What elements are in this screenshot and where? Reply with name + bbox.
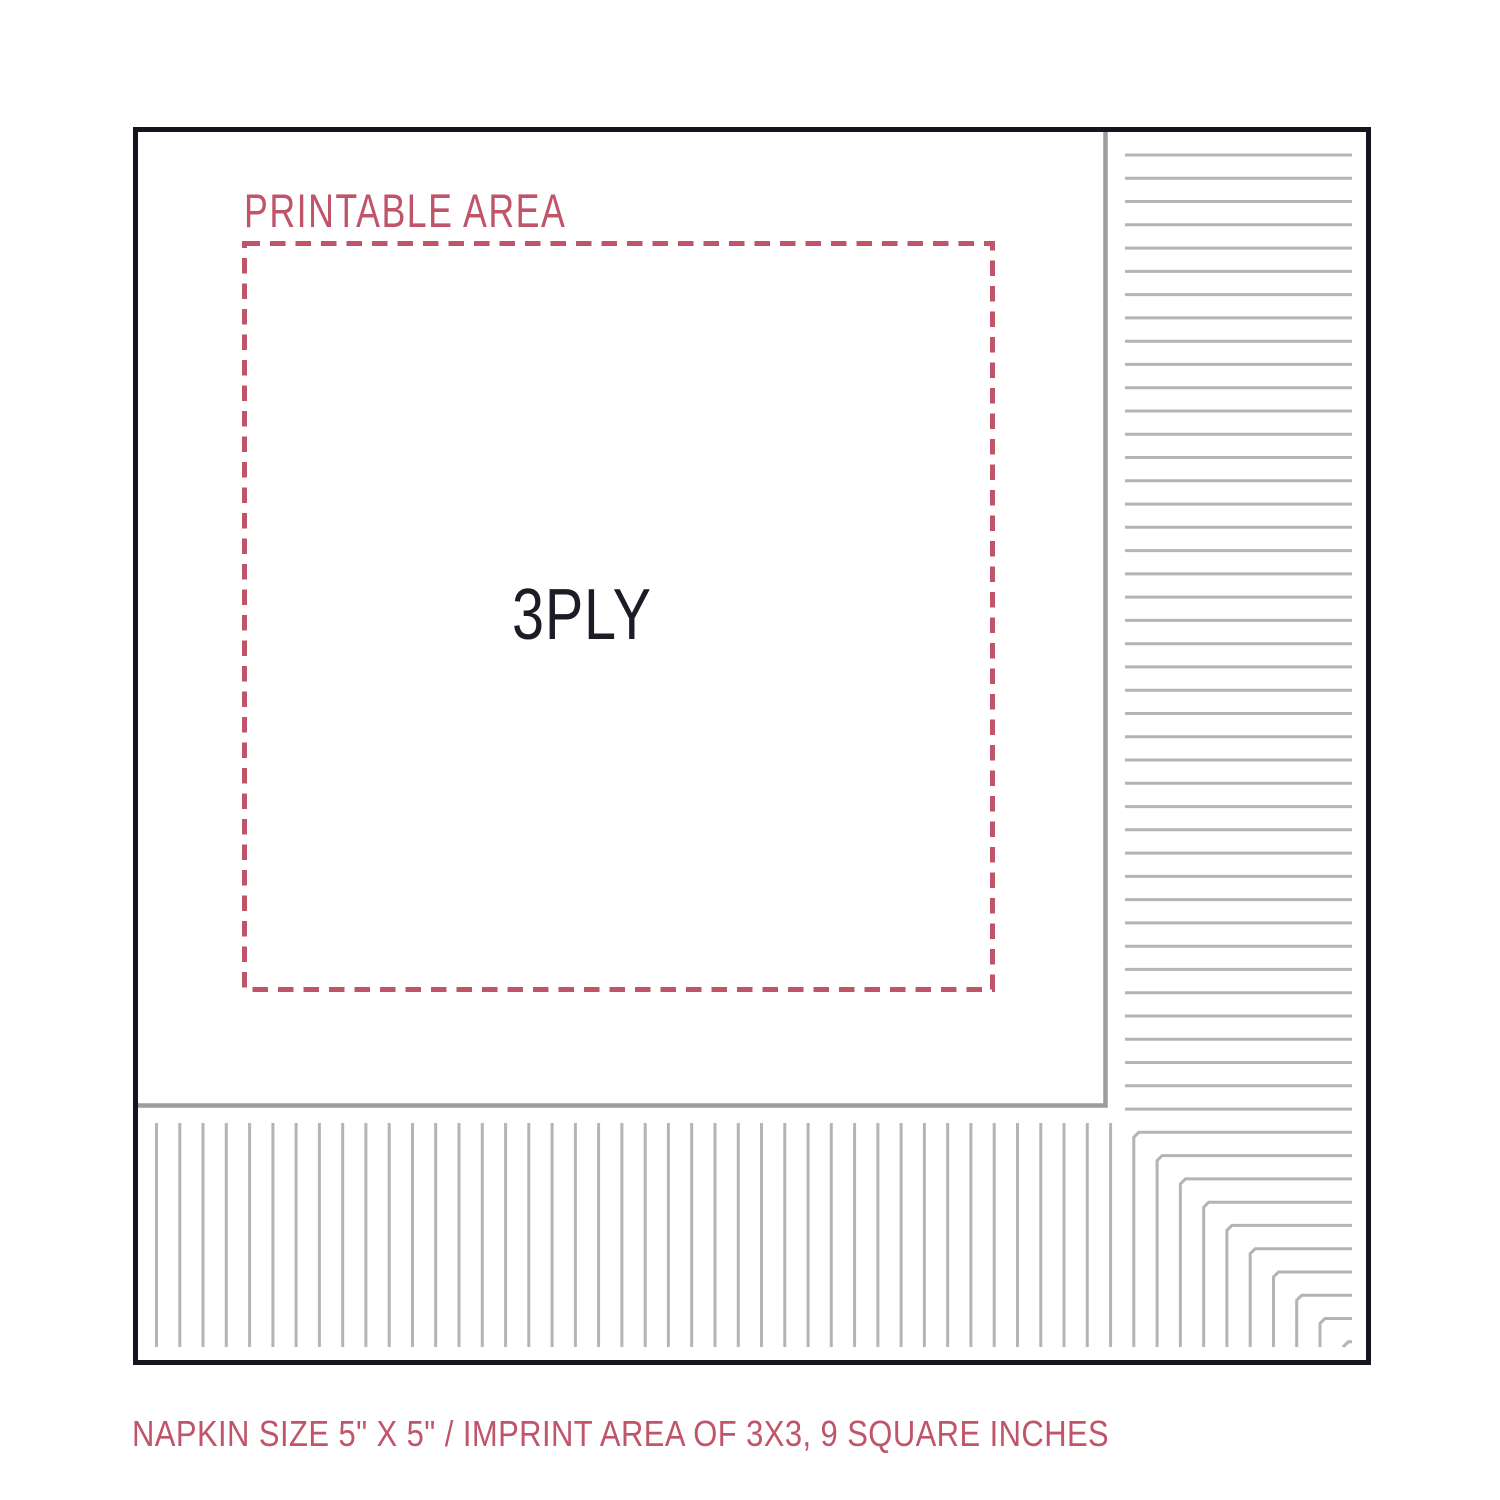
napkin-diagram-svg: [0, 0, 1500, 1500]
napkin-template-diagram: PRINTABLE AREA 3PLY NAPKIN SIZE 5" X 5" …: [0, 0, 1500, 1500]
napkin-size-caption: NAPKIN SIZE 5" X 5" / IMPRINT AREA OF 3X…: [132, 1416, 1109, 1452]
ply-label: 3PLY: [512, 579, 652, 651]
printable-area-label: PRINTABLE AREA: [244, 187, 566, 234]
